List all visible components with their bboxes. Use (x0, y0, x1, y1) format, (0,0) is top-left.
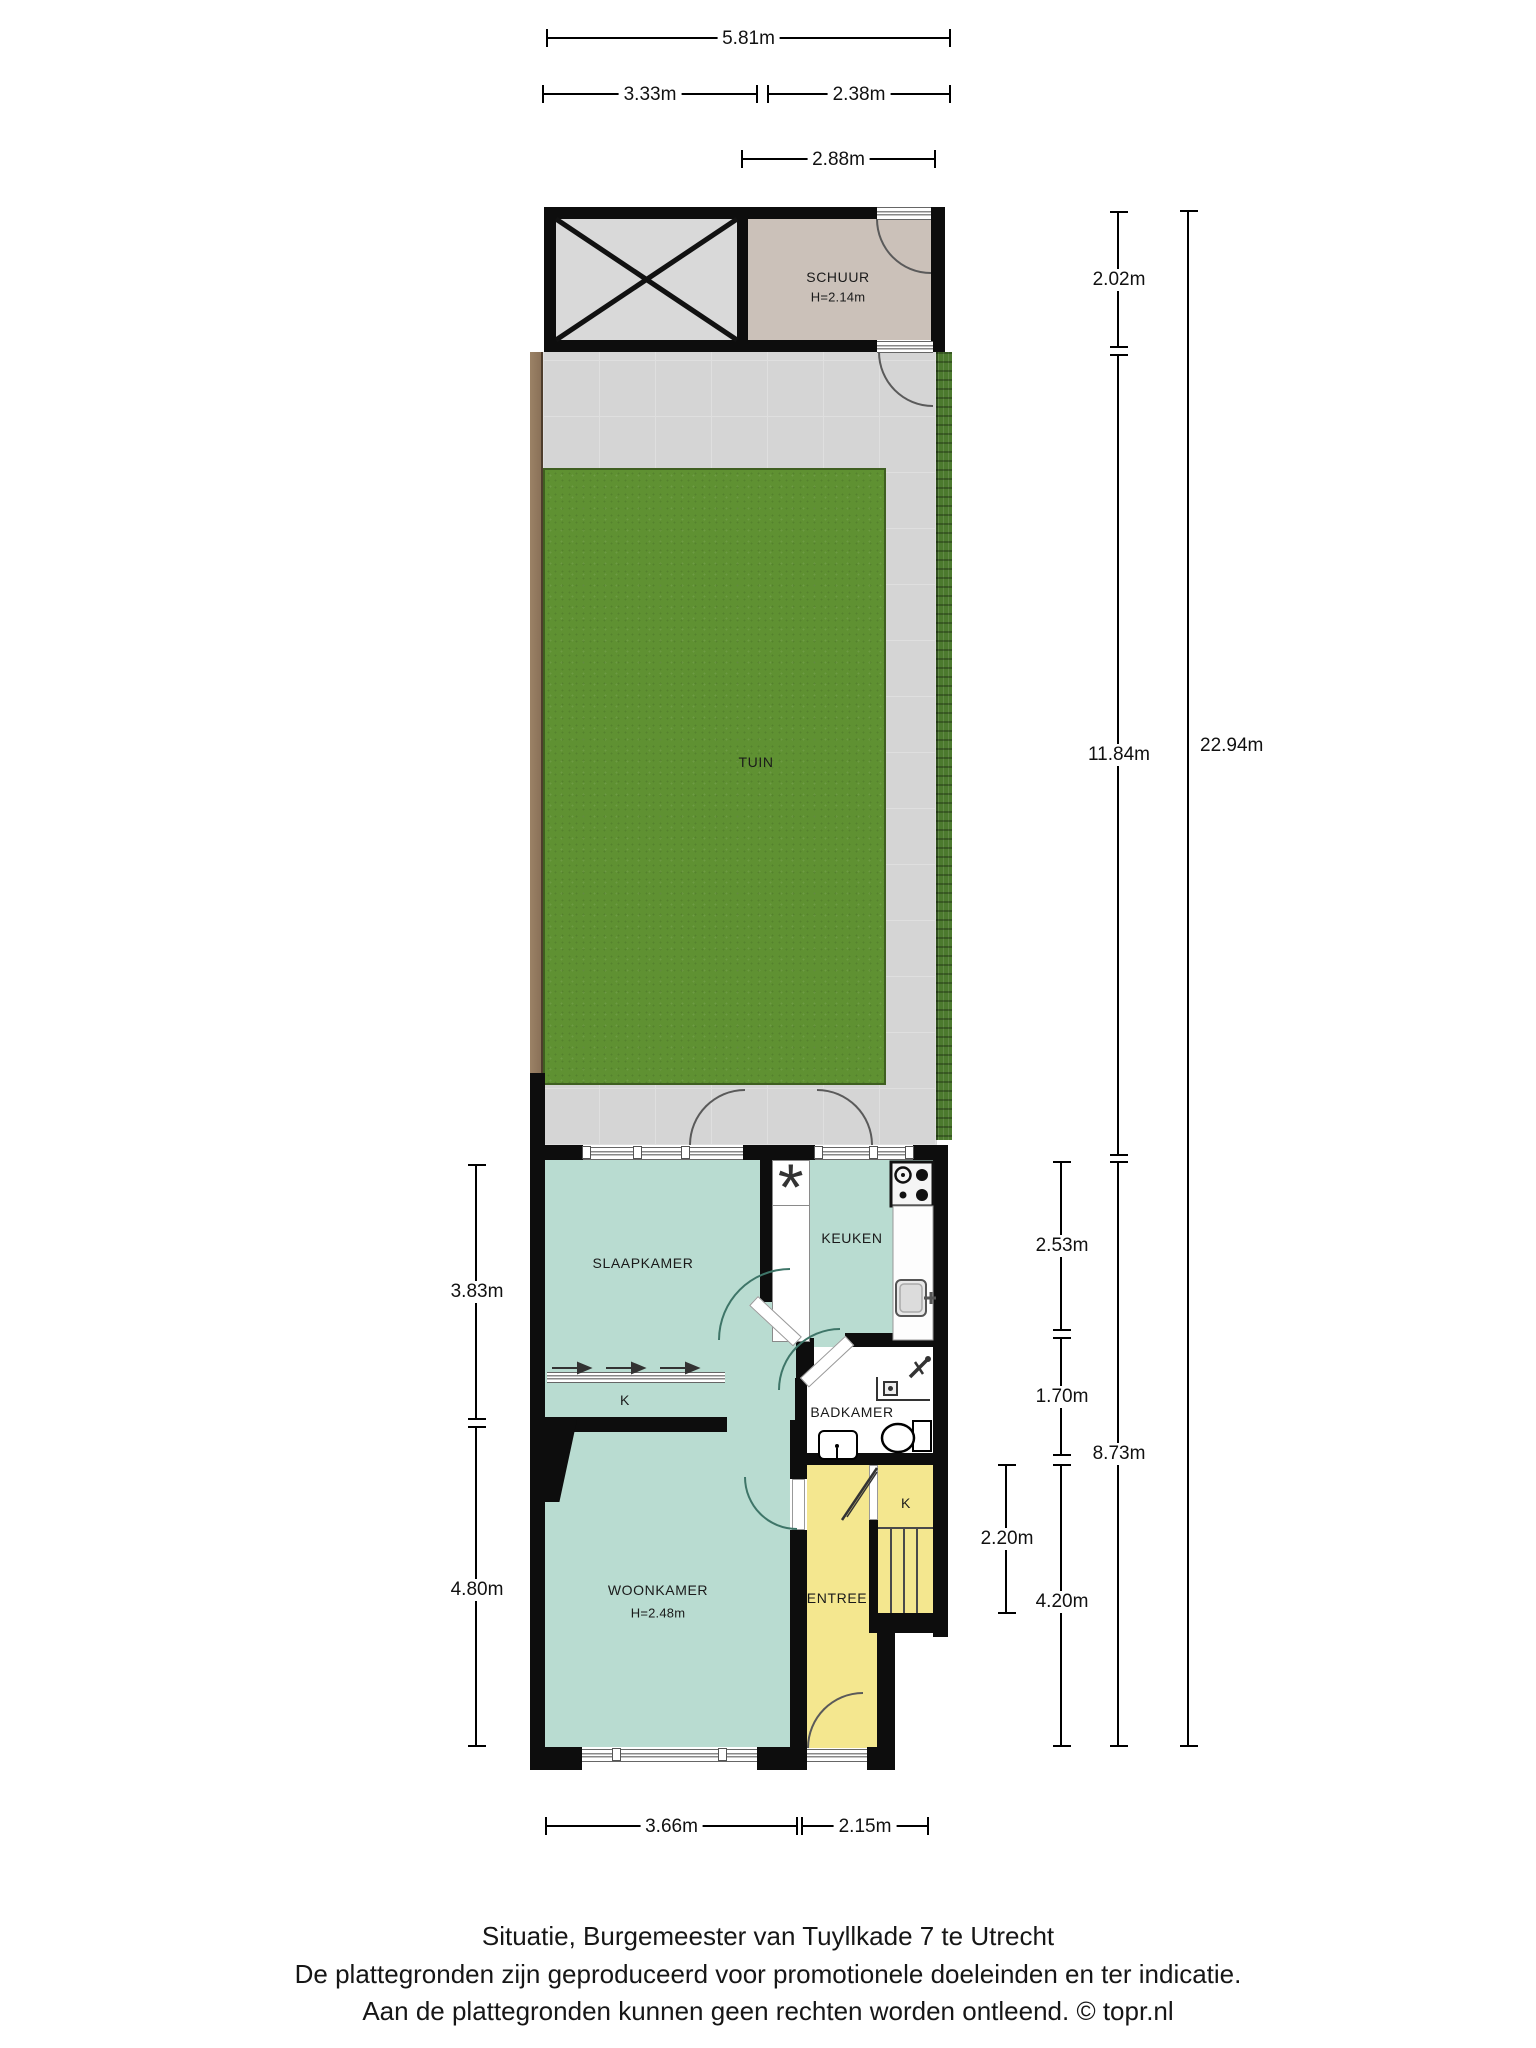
dim-label: 22.94m (1198, 735, 1265, 757)
woonkamer-label: WOONKAMER (608, 1582, 708, 1598)
dim-garden-depth: 11.84m (1117, 355, 1119, 1155)
dim-slaapkamer-depth: 3.83m (475, 1165, 477, 1419)
dim-label: 2.53m (1031, 1235, 1094, 1257)
footer-title: Situatie, Burgemeester van Tuyllkade 7 t… (482, 1921, 1054, 1952)
dim-label: 2.15m (834, 1816, 897, 1838)
footer-disclaimer-2: Aan de plattegronden kunnen geen rechten… (362, 1996, 1173, 2027)
dim-top-left: 3.33m (543, 93, 757, 95)
washbasin-icon (819, 1431, 857, 1459)
carport-cross-icon (556, 219, 737, 340)
keuken-label: KEUKEN (821, 1230, 882, 1246)
dim-schuur-width: 2.88m (742, 158, 935, 160)
dim-label: 2.20m (976, 1528, 1039, 1550)
dim-top-right: 2.38m (768, 93, 950, 95)
dim-keuken-depth: 2.53m (1060, 1162, 1062, 1330)
floorplan-page: * (0, 0, 1536, 2048)
shower-icon (877, 1377, 930, 1400)
stairs-icon (878, 1528, 933, 1613)
fixture-layer (0, 0, 1536, 2048)
slaapkamer-label: SLAAPKAMER (593, 1255, 694, 1271)
dim-total-depth: 22.94m (1187, 211, 1189, 1746)
dim-label: 2.38m (828, 84, 891, 106)
schuur-label: SCHUUR (806, 269, 870, 285)
dim-label: 4.20m (1031, 1591, 1094, 1613)
dim-bottom-left: 3.66m (546, 1825, 797, 1827)
dim-label: 3.83m (446, 1281, 509, 1303)
kast-trap-door-leaf (842, 1468, 877, 1520)
kast-trap-label: K (901, 1495, 911, 1511)
dim-schuur-depth: 2.02m (1117, 212, 1119, 347)
dim-label: 4.80m (446, 1579, 509, 1601)
tuin-label: TUIN (738, 754, 773, 770)
dim-bottom-right: 2.15m (802, 1825, 928, 1827)
dim-top-total: 5.81m (547, 37, 950, 39)
dim-label: 2.02m (1088, 269, 1151, 291)
entree-label: ENTREE (807, 1590, 867, 1606)
woonkamer-height-label: H=2.48m (631, 1606, 686, 1621)
stove-icon (891, 1162, 933, 1206)
dim-label: 11.84m (1083, 744, 1155, 766)
dim-badkamer-depth: 1.70m (1060, 1338, 1062, 1455)
toilet-icon (882, 1421, 931, 1452)
dim-label: 1.70m (1031, 1386, 1094, 1408)
dim-label: 3.66m (640, 1816, 703, 1838)
schuur-height-label: H=2.14m (811, 290, 866, 305)
dim-label: 8.73m (1088, 1443, 1151, 1465)
wardrobe-slide-arrows (552, 1363, 698, 1373)
kast-hal-label: K (620, 1392, 630, 1408)
dim-label: 5.81m (717, 28, 780, 50)
bath-tap-icon (910, 1357, 931, 1378)
badkamer-label: BADKAMER (810, 1404, 893, 1420)
dim-label: 2.88m (807, 149, 870, 171)
dim-woonkamer-depth-right: 4.20m (1060, 1465, 1062, 1746)
dim-house-depth: 8.73m (1117, 1162, 1119, 1746)
dim-woonkamer-depth-left: 4.80m (475, 1427, 477, 1746)
dim-kast-depth: 2.20m (1005, 1465, 1007, 1613)
kitchen-counter (893, 1206, 933, 1340)
footer-disclaimer-1: De plattegronden zijn geproduceerd voor … (295, 1959, 1242, 1990)
dim-label: 3.33m (619, 84, 682, 106)
